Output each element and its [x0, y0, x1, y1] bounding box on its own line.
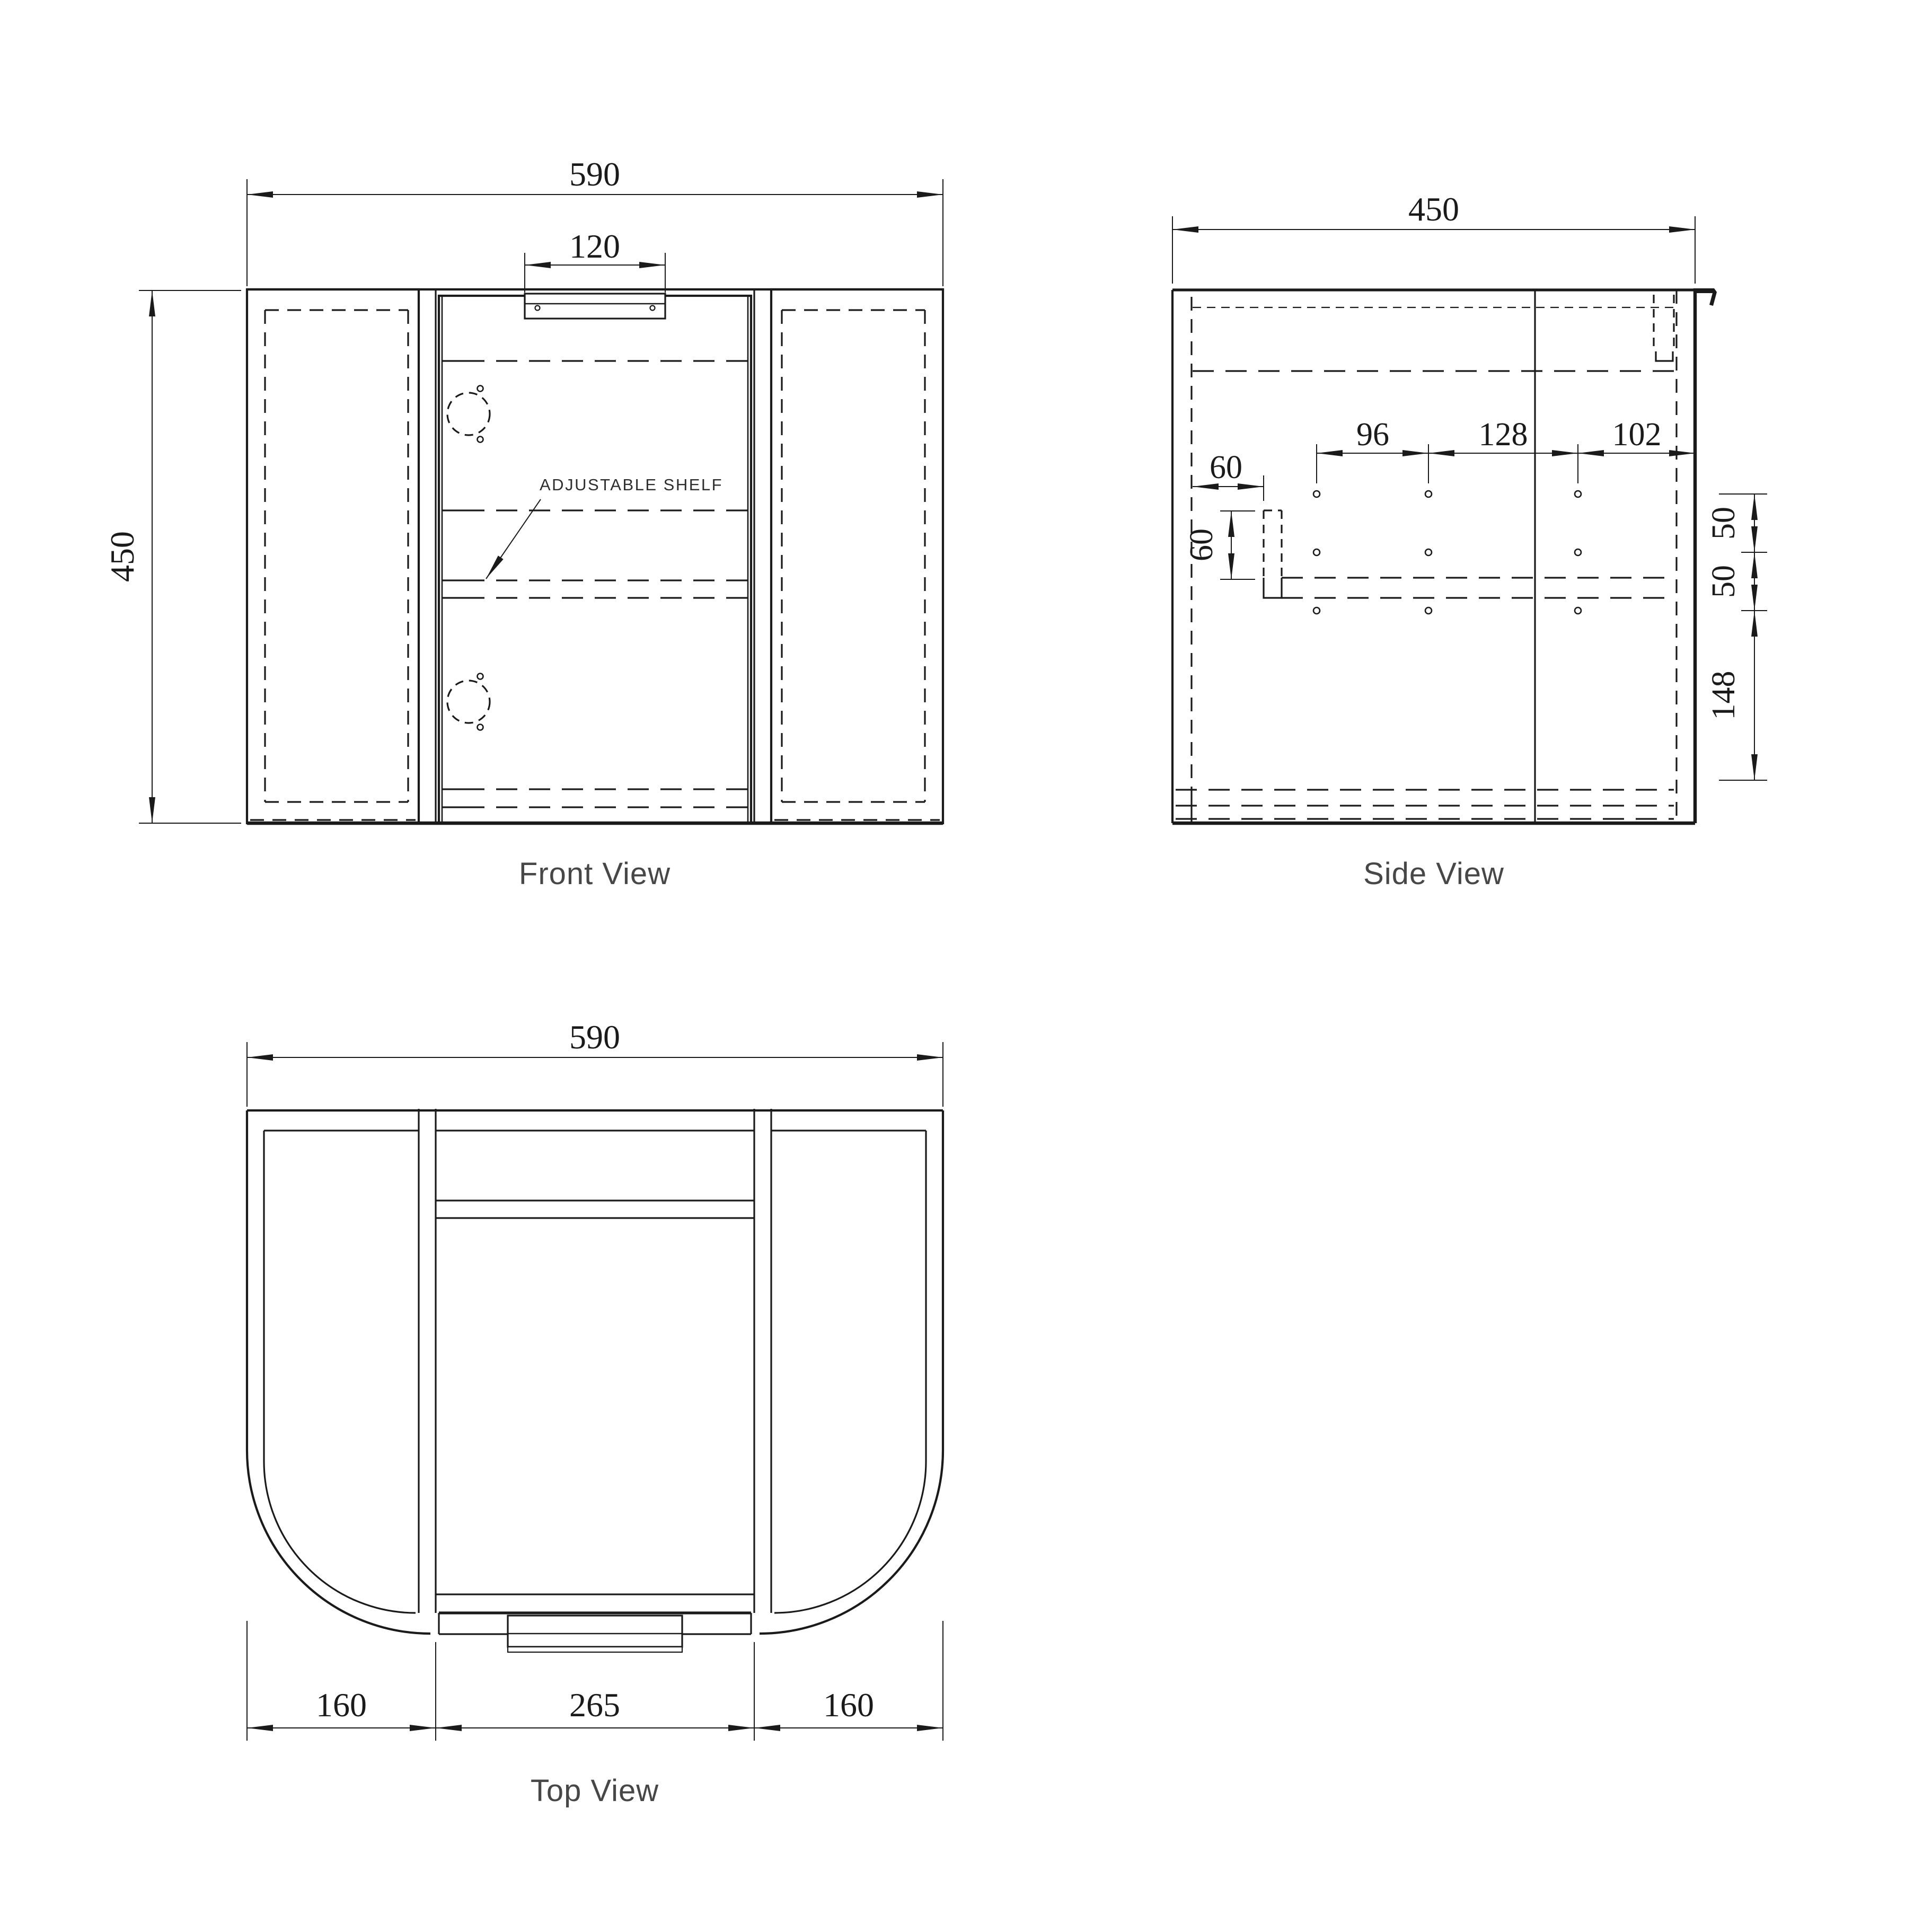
top-dim-160-right: 160 — [823, 1686, 874, 1724]
top-view-body — [247, 1109, 943, 1652]
front-view-title: Front View — [519, 857, 671, 891]
top-door-handle — [508, 1616, 682, 1652]
side-view-body — [1172, 288, 1717, 823]
side-dim-50-top: 50 — [1706, 507, 1742, 540]
side-view-title: Side View — [1363, 857, 1504, 891]
front-door — [439, 296, 751, 823]
side-dim-148: 148 — [1706, 671, 1742, 720]
side-dim-50-bottom: 50 — [1706, 565, 1742, 598]
top-dim-590: 590 — [569, 1018, 620, 1056]
side-dim-60-h: 60 — [1210, 449, 1242, 486]
top-view-dimension-overall-width: 590 — [247, 1018, 943, 1107]
side-view: 450 — [1172, 190, 1767, 891]
front-dim-120: 120 — [569, 227, 620, 265]
front-left-side-panel — [247, 289, 419, 823]
front-view-dimension-height: 450 — [103, 290, 241, 823]
top-view-title: Top View — [531, 1774, 659, 1808]
adjustable-shelf-label: ADJUSTABLE SHELF — [540, 475, 723, 494]
side-handle-recess-hidden — [1654, 295, 1674, 361]
front-view-cabinet: ADJUSTABLE SHELF — [247, 289, 943, 823]
top-carcass-side-walls — [419, 1109, 771, 1613]
side-dim-102: 102 — [1612, 417, 1662, 453]
front-view-dimension-overall-width: 590 — [247, 155, 943, 286]
front-dim-450: 450 — [103, 531, 141, 582]
front-view-dimension-handle-width: 120 — [525, 227, 665, 293]
top-mounting-rail-band — [436, 1201, 754, 1218]
side-view-dimension-hole-rows: 50 50 148 — [1706, 494, 1767, 780]
front-door-hidden-shelf-lines — [442, 361, 748, 807]
side-view-dimension-holes: 96 128 102 — [1317, 417, 1695, 483]
side-view-dimension-rail-height: 60 — [1184, 511, 1255, 579]
front-right-panel-hidden-lines — [774, 310, 940, 820]
top-view: 590 — [247, 1018, 943, 1808]
side-door-lip-hook — [1695, 288, 1717, 306]
top-dim-160-left: 160 — [316, 1686, 367, 1724]
front-right-side-panel — [771, 289, 943, 823]
side-dim-96: 96 — [1356, 417, 1389, 453]
side-view-dimension-depth: 450 — [1172, 190, 1695, 284]
top-curved-side-panels — [247, 1450, 943, 1634]
front-door-hinge-top — [447, 386, 490, 443]
front-view: 590 120 450 — [103, 155, 943, 891]
front-dim-590: 590 — [569, 155, 620, 193]
top-dim-265: 265 — [569, 1686, 620, 1724]
front-shelf-annotation: ADJUSTABLE SHELF — [486, 475, 723, 579]
side-dim-128: 128 — [1479, 417, 1528, 453]
side-dim-60-v: 60 — [1184, 528, 1220, 561]
front-left-panel-hidden-lines — [250, 310, 416, 820]
cabinet-technical-drawing: 590 120 450 — [0, 0, 1932, 1932]
side-mounting-rail — [1264, 510, 1675, 598]
side-view-dimension-rail-setback: 60 — [1193, 449, 1264, 501]
front-door-handle — [525, 294, 665, 319]
front-door-hinge-bottom — [447, 674, 490, 730]
side-dim-450: 450 — [1408, 190, 1459, 228]
side-shelf-pin-holes — [1313, 491, 1581, 614]
side-bottom-hidden-lines — [1176, 790, 1674, 819]
